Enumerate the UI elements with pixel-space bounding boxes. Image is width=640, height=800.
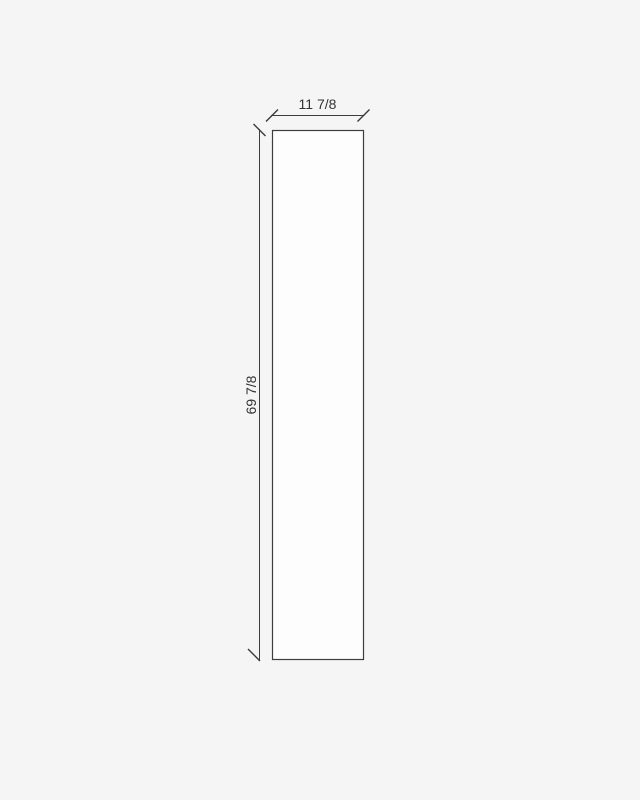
panel-outline	[273, 131, 364, 660]
height-dimension-tick-bottom	[248, 649, 260, 661]
panel-dimension-diagram: 11 7/8 69 7/8	[0, 0, 640, 800]
height-dimension-label: 69 7/8	[243, 375, 259, 414]
width-dimension: 11 7/8	[266, 96, 370, 122]
page-background: { "diagram": { "dimensions": { "width_la…	[0, 0, 640, 800]
height-dimension: 69 7/8	[243, 124, 266, 661]
width-dimension-label: 11 7/8	[299, 96, 337, 112]
drawing-canvas: 11 7/8 69 7/8	[0, 0, 640, 800]
